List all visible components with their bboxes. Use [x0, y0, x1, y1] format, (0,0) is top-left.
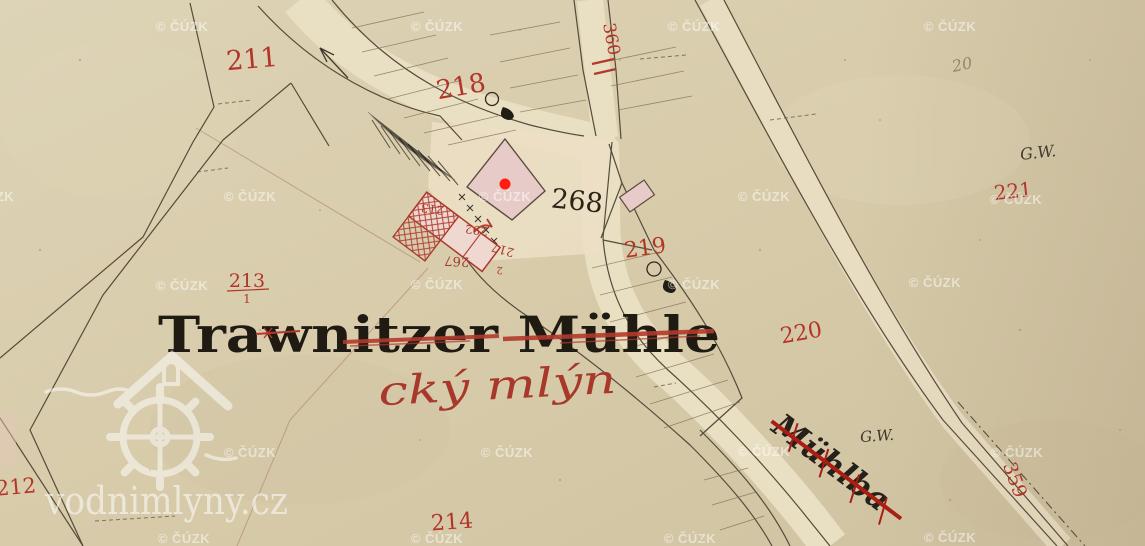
- vodnimlyny-site-text: vodnimlyny.cz: [44, 479, 288, 523]
- cuzk-watermark: © ČÚZK: [909, 275, 961, 290]
- cuzk-watermark: © ČÚZK: [158, 531, 210, 546]
- cadastral-map: 211 218 268 213 1 212 214 219 220 221 35…: [0, 0, 1145, 546]
- cuzk-watermark: © ČÚZK: [668, 19, 720, 34]
- cuzk-watermark: © ČÚZK: [224, 189, 276, 204]
- map-marker-dot[interactable]: [500, 179, 511, 190]
- cuzk-watermark: © ČÚZK: [924, 19, 976, 34]
- cuzk-watermark: © ČÚZK: [664, 531, 716, 546]
- cuzk-watermark: © ČÚZK: [668, 277, 720, 292]
- cuzk-watermark: © ČÚZK: [481, 445, 533, 460]
- cuzk-watermark: © ČÚZK: [156, 19, 208, 34]
- cuzk-watermark: © ČÚZK: [479, 189, 531, 204]
- edge-shading: [0, 0, 1145, 546]
- map-viewport[interactable]: 211 218 268 213 1 212 214 219 220 221 35…: [0, 0, 1145, 546]
- cuzk-watermark: © ČÚZK: [924, 530, 976, 545]
- cuzk-watermark: © ČÚZK: [991, 445, 1043, 460]
- cuzk-watermark: © ČÚZK: [0, 189, 14, 204]
- cuzk-watermark: © ČÚZK: [411, 19, 463, 34]
- cuzk-watermark: © ČÚZK: [990, 192, 1042, 207]
- cuzk-watermark: © ČÚZK: [411, 531, 463, 546]
- cuzk-watermark: © ČÚZK: [738, 189, 790, 204]
- cuzk-watermark: © ČÚZK: [156, 278, 208, 293]
- cuzk-watermark: © ČÚZK: [738, 444, 790, 459]
- cuzk-watermark: © ČÚZK: [411, 277, 463, 292]
